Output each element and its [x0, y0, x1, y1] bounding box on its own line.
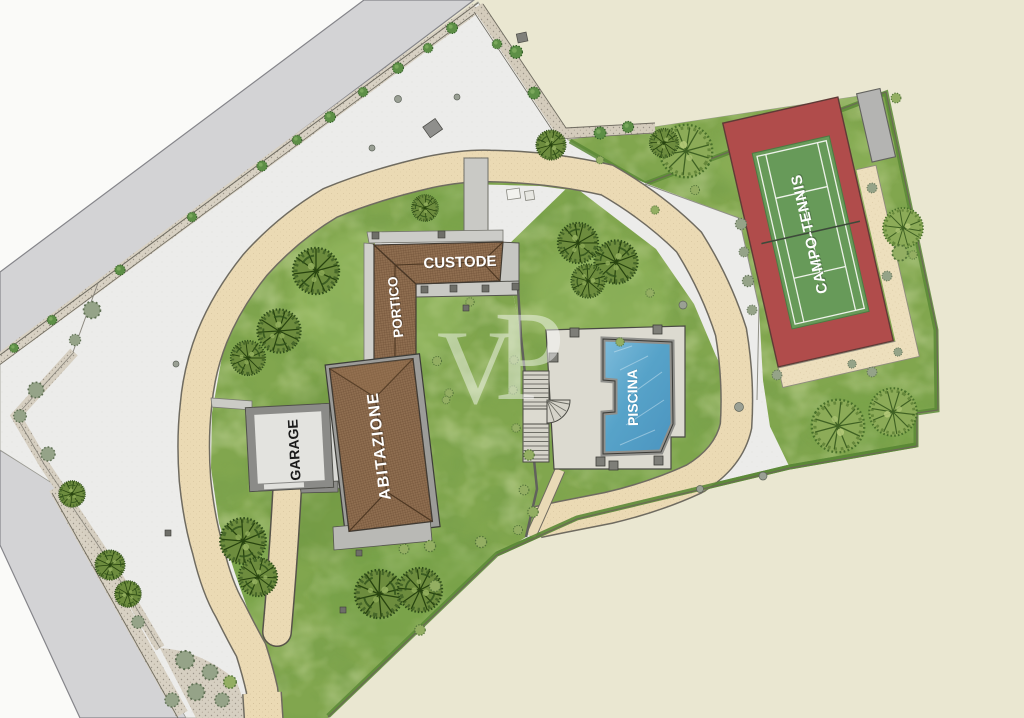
svg-text:CUSTODE: CUSTODE — [423, 253, 497, 273]
svg-text:PISCINA: PISCINA — [624, 369, 641, 426]
svg-text:GARAGE: GARAGE — [284, 419, 303, 481]
svg-text:P: P — [494, 285, 565, 427]
